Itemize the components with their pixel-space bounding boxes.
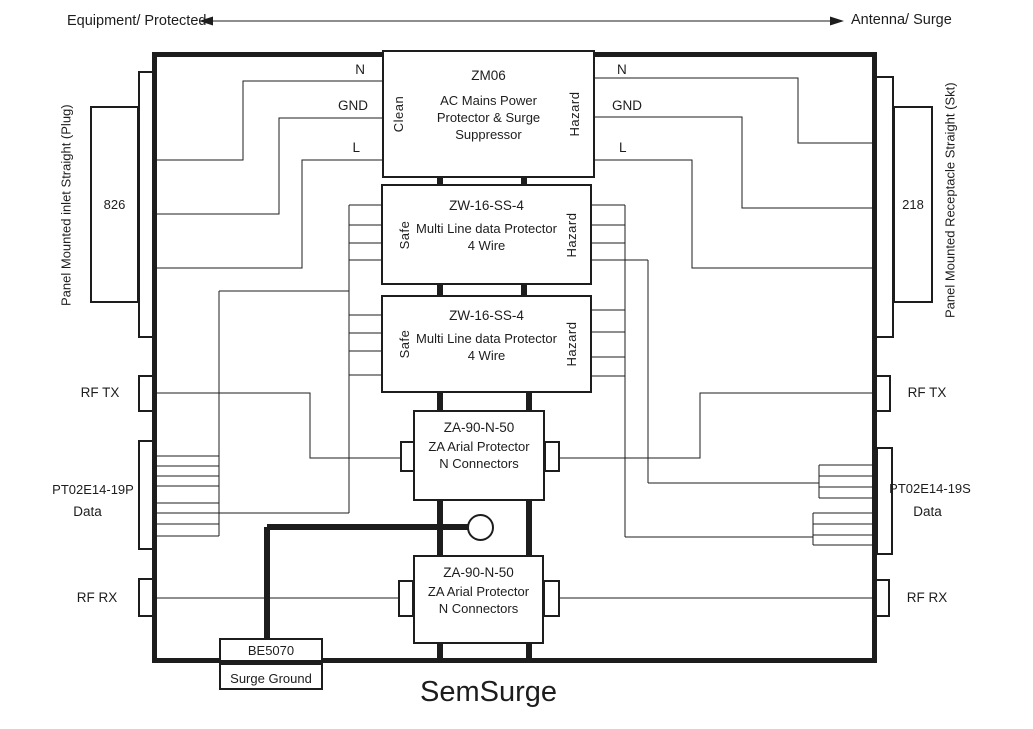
- za-upper-desc-line2: N Connectors: [439, 455, 518, 472]
- zw-lower-hazard-zone-label: Hazard: [564, 322, 579, 367]
- right-rf-rx-label: RF RX: [899, 590, 955, 605]
- zm06-hazard-zone-label: Hazard: [567, 92, 582, 137]
- left-panel-vertical-label: Panel Mounted inlet Straight (Plug): [56, 103, 76, 307]
- za-lower-right-tab: [543, 580, 560, 617]
- zw-upper-desc-line2: 4 Wire: [468, 237, 506, 254]
- equipment-protected-label: Equipment/ Protected: [67, 13, 206, 29]
- surge-ground-label: Surge Ground: [221, 665, 321, 692]
- right-socket-id: 218: [902, 197, 924, 212]
- right-data-word-label: Data: [905, 504, 950, 519]
- surge-ground-block: BE5070 Surge Ground: [219, 638, 323, 690]
- left-wire-n-label: N: [320, 62, 365, 77]
- zw-lower-desc-line1: Multi Line data Protector: [416, 330, 557, 347]
- surge-ground-part-number: BE5070: [221, 640, 321, 660]
- za-upper-desc-line1: ZA Arial Protector: [428, 438, 529, 455]
- zm06-part-number: ZM06: [471, 68, 506, 83]
- left-data-word-label: Data: [65, 504, 110, 519]
- za-lower-desc-line1: ZA Arial Protector: [428, 583, 529, 600]
- enclosure-bottom-border-segment: [219, 660, 323, 665]
- zw-upper-desc-line1: Multi Line data Protector: [416, 220, 557, 237]
- right-rf-tx-label: RF TX: [899, 385, 955, 400]
- za-lower-block: ZA-90-N-50 ZA Arial Protector N Connecto…: [413, 555, 544, 644]
- left-wire-l-label: L: [320, 140, 360, 155]
- za-upper-block: ZA-90-N-50 ZA Arial Protector N Connecto…: [413, 410, 545, 501]
- zw-lower-part-number: ZW-16-SS-4: [449, 308, 524, 323]
- right-wire-gnd-label: GND: [612, 98, 642, 113]
- za-lower-left-tab: [398, 580, 414, 617]
- zm06-block: Clean Hazard ZM06 AC Mains Power Protect…: [382, 50, 595, 178]
- left-rf-rx-label: RF RX: [68, 590, 126, 605]
- arrowhead-right-icon: [830, 17, 844, 26]
- left-wire-gnd-label: GND: [320, 98, 368, 113]
- za-lower-part-number: ZA-90-N-50: [443, 565, 514, 580]
- right-wire-n-label: N: [617, 62, 627, 77]
- zw-upper-hazard-zone-label: Hazard: [564, 212, 579, 257]
- left-plug-id: 826: [104, 197, 126, 212]
- right-wire-l-label: L: [619, 140, 627, 155]
- left-rf-tx-label: RF TX: [70, 385, 130, 400]
- right-data-part-label: PT02E14-19S: [885, 481, 975, 496]
- right-panel-vertical-label: Panel Mounted Receptacle Straight (Skt): [940, 78, 960, 323]
- zw-lower-safe-zone-label: Safe: [397, 330, 412, 359]
- ground-point-circle: [467, 514, 494, 541]
- diagram-title: SemSurge: [420, 676, 557, 709]
- zw-upper-safe-zone-label: Safe: [397, 220, 412, 249]
- left-data-part-label: PT02E14-19P: [48, 482, 138, 497]
- zw-upper-part-number: ZW-16-SS-4: [449, 198, 524, 213]
- antenna-surge-label: Antenna/ Surge: [851, 12, 952, 28]
- zw-lower-block: Safe Hazard ZW-16-SS-4 Multi Line data P…: [381, 295, 592, 393]
- zm06-clean-zone-label: Clean: [391, 96, 406, 132]
- semsurge-diagram: 826 218 Clean Hazard ZM06 AC Mains Power…: [0, 0, 1033, 729]
- zw-lower-desc-line2: 4 Wire: [468, 347, 506, 364]
- zm06-desc-line3: Suppressor: [455, 126, 521, 143]
- right-socket-box: 218: [893, 106, 933, 303]
- zm06-desc-line2: Protector & Surge: [437, 109, 540, 126]
- za-upper-part-number: ZA-90-N-50: [444, 420, 515, 435]
- right-data-connector: [876, 447, 893, 555]
- za-lower-desc-line2: N Connectors: [439, 600, 518, 617]
- zw-upper-block: Safe Hazard ZW-16-SS-4 Multi Line data P…: [381, 184, 592, 285]
- zm06-desc-line1: AC Mains Power: [440, 92, 537, 109]
- za-upper-right-tab: [544, 441, 560, 472]
- left-plug-box: 826: [90, 106, 139, 303]
- right-socket-body: [874, 76, 894, 338]
